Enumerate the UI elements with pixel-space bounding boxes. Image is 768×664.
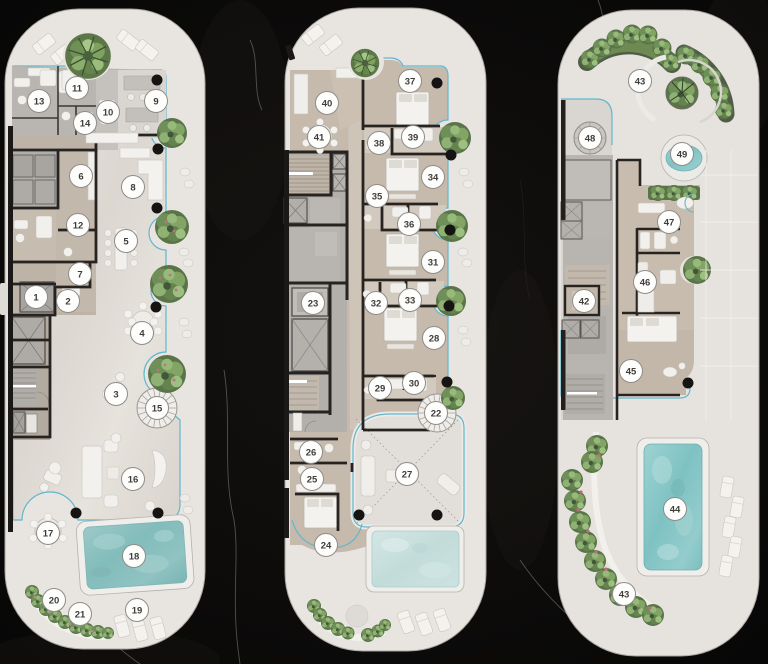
svg-text:3: 3 — [113, 389, 118, 400]
svg-text:39: 39 — [408, 132, 419, 143]
svg-text:1: 1 — [33, 292, 39, 303]
svg-text:34: 34 — [428, 172, 439, 183]
svg-text:32: 32 — [371, 298, 382, 309]
svg-text:42: 42 — [579, 296, 590, 307]
svg-text:37: 37 — [405, 76, 416, 87]
svg-text:28: 28 — [429, 333, 440, 344]
svg-text:8: 8 — [130, 182, 135, 193]
svg-text:46: 46 — [640, 277, 651, 288]
svg-text:22: 22 — [431, 408, 442, 419]
svg-text:14: 14 — [80, 118, 91, 129]
svg-text:19: 19 — [132, 605, 143, 616]
svg-text:7: 7 — [77, 269, 82, 280]
svg-text:36: 36 — [404, 219, 415, 230]
svg-text:15: 15 — [152, 403, 163, 414]
svg-text:12: 12 — [73, 220, 84, 231]
svg-text:5: 5 — [123, 236, 129, 247]
svg-text:35: 35 — [372, 191, 383, 202]
svg-text:30: 30 — [409, 378, 420, 389]
svg-text:10: 10 — [103, 107, 114, 118]
svg-text:33: 33 — [405, 295, 416, 306]
svg-text:9: 9 — [153, 96, 158, 107]
svg-text:21: 21 — [75, 609, 86, 620]
svg-text:26: 26 — [306, 447, 317, 458]
svg-text:47: 47 — [664, 217, 675, 228]
svg-text:17: 17 — [43, 528, 54, 539]
svg-text:40: 40 — [322, 98, 333, 109]
svg-text:24: 24 — [321, 540, 332, 551]
svg-text:23: 23 — [308, 298, 319, 309]
svg-text:49: 49 — [677, 149, 688, 160]
svg-text:43: 43 — [635, 76, 646, 87]
svg-text:11: 11 — [72, 83, 83, 94]
svg-text:29: 29 — [375, 383, 386, 394]
svg-text:43: 43 — [619, 589, 630, 600]
svg-text:44: 44 — [670, 504, 681, 515]
svg-text:13: 13 — [34, 96, 45, 107]
svg-text:20: 20 — [49, 595, 60, 606]
svg-text:16: 16 — [128, 474, 139, 485]
svg-text:18: 18 — [129, 551, 140, 562]
svg-text:2: 2 — [65, 296, 70, 307]
svg-text:38: 38 — [374, 138, 385, 149]
svg-text:31: 31 — [428, 257, 439, 268]
svg-text:27: 27 — [402, 469, 413, 480]
svg-text:45: 45 — [626, 366, 637, 377]
svg-text:4: 4 — [139, 328, 145, 339]
svg-text:6: 6 — [78, 171, 83, 182]
svg-text:48: 48 — [585, 133, 596, 144]
svg-text:41: 41 — [314, 132, 325, 143]
svg-text:25: 25 — [307, 474, 318, 485]
